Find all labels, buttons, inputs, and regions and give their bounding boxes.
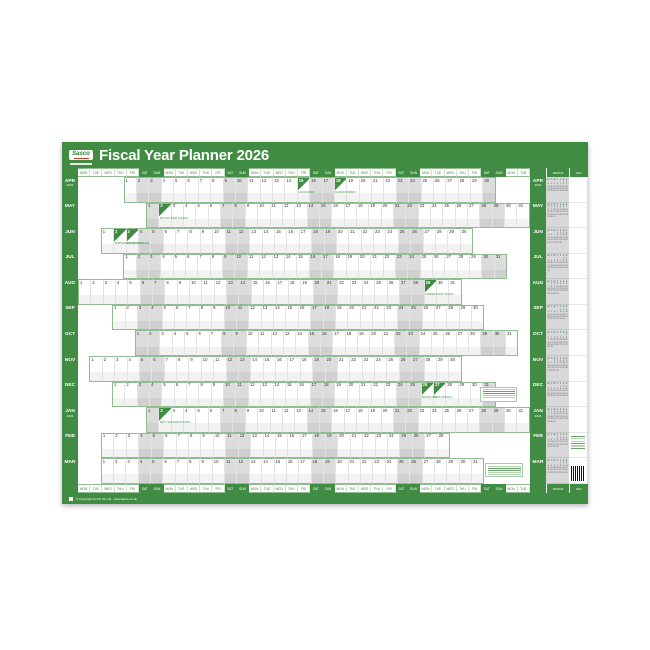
day-number: 17 xyxy=(324,179,329,183)
planner-body: APR2022MAYJUNJULAUGSEPOCTNOVDECJAN2023FE… xyxy=(62,168,588,493)
day-number: 17 xyxy=(334,332,339,336)
day-number: 25 xyxy=(399,460,404,464)
day-number: 16 xyxy=(265,281,270,285)
day-header-cell: TUE xyxy=(432,168,444,177)
day-cell: 22 xyxy=(406,407,418,433)
day-cell: 13 xyxy=(250,458,262,484)
day-cell: 14 xyxy=(264,433,276,459)
mini-calendar: MTWTFSS123456789101112131415161718192021… xyxy=(546,356,569,382)
day-number: 3 xyxy=(173,204,175,208)
day-number: 19 xyxy=(348,255,353,259)
day-number: 8 xyxy=(234,409,236,413)
day-number: 15 xyxy=(287,383,292,387)
day-number: 18 xyxy=(313,460,318,464)
day-header-cell: SUN xyxy=(322,168,334,177)
day-number: 30 xyxy=(506,204,511,208)
day-number: 16 xyxy=(333,204,338,208)
day-cell: 13 xyxy=(295,407,307,433)
day-cell: 29 xyxy=(493,407,505,433)
day-number: 15 xyxy=(265,358,270,362)
day-cell: 5 xyxy=(174,254,186,280)
day-cell xyxy=(518,254,529,280)
day-cell: 9 xyxy=(246,203,258,229)
planner-footer: © Copyright ACCO UK Ltd · www.sasco.co.u… xyxy=(62,493,588,504)
day-cell: 19 xyxy=(369,203,381,229)
day-cell: 27 xyxy=(425,433,437,459)
day-cell xyxy=(112,254,123,280)
key-legend-text xyxy=(571,436,585,450)
day-number: 14 xyxy=(286,255,291,259)
day-number: 11 xyxy=(227,434,231,438)
day-number: 22 xyxy=(385,255,390,259)
day-cell: 2 xyxy=(103,356,115,382)
day-cell: 24 xyxy=(386,228,398,254)
day-number: 13 xyxy=(251,460,256,464)
planner-title: Fiscal Year Planner 2026 xyxy=(99,147,269,164)
day-number: 12 xyxy=(238,460,243,464)
day-number: 26 xyxy=(411,460,416,464)
day-number: 11 xyxy=(203,281,207,285)
month-label: APR2022 xyxy=(62,177,78,203)
day-number: 25 xyxy=(410,383,415,387)
day-cell: 28 xyxy=(446,382,458,408)
day-cell: 5 xyxy=(151,228,163,254)
day-cell: 3 xyxy=(149,254,161,280)
holiday-label: EASTER MONDAY xyxy=(335,192,374,195)
day-cell xyxy=(78,254,89,280)
day-cell: 19 xyxy=(301,279,313,305)
day-number: 1 xyxy=(114,306,116,310)
day-number: 12 xyxy=(239,230,244,234)
day-number: 4 xyxy=(140,460,142,464)
day-cell: 31 xyxy=(517,203,529,229)
day-number: 14 xyxy=(264,230,269,234)
day-cell: 5 xyxy=(151,458,163,484)
day-header-cell: SAT xyxy=(139,484,151,493)
key-cell xyxy=(569,356,588,382)
month-row: 1NEW YEAR BANK HOLIDAY234567891011121314… xyxy=(78,407,530,433)
day-number: 4 xyxy=(185,204,187,208)
day-number: 4 xyxy=(151,306,153,310)
day-header-cell: SUN xyxy=(237,484,249,493)
day-number: 27 xyxy=(446,255,451,259)
day-number: 28 xyxy=(481,409,486,413)
day-number: 17 xyxy=(312,383,317,387)
day-cell: 14 xyxy=(274,305,286,331)
day-cell: 4 xyxy=(161,254,173,280)
day-number: 30 xyxy=(484,179,489,183)
day-number: 2 xyxy=(92,281,94,285)
day-cell xyxy=(78,458,89,484)
day-number: 18 xyxy=(314,434,319,438)
day-header-cell: MON xyxy=(78,168,90,177)
day-header-cell: THU xyxy=(115,168,127,177)
day-cell: 20 xyxy=(348,305,360,331)
day-header-cell: MON xyxy=(335,168,347,177)
day-cell: 15 xyxy=(275,458,287,484)
day-number: 25 xyxy=(376,281,381,285)
mini-calendar: MTWTFSS123456789101112131415161718192021… xyxy=(546,458,569,484)
day-number: 9 xyxy=(235,332,237,336)
day-cell: 14 xyxy=(308,407,320,433)
day-number: 8 xyxy=(200,383,202,387)
day-number: 22 xyxy=(351,358,356,362)
day-number: 11 xyxy=(249,255,253,259)
day-number: 20 xyxy=(337,460,342,464)
day-cell: 2 xyxy=(148,330,160,356)
day-number: 9 xyxy=(179,281,181,285)
mini-calendar-year-header-bottom: 2023/24 xyxy=(546,484,569,493)
day-number: 1 xyxy=(103,434,105,438)
day-header-cell: WED xyxy=(102,484,114,493)
day-cell: 28 xyxy=(425,356,437,382)
day-number: 9 xyxy=(213,306,215,310)
day-cell: 27 xyxy=(412,356,424,382)
day-cell: 13 xyxy=(273,177,285,203)
day-number: 14 xyxy=(275,383,280,387)
key-cell xyxy=(569,279,588,305)
day-cell: 21 xyxy=(360,382,372,408)
day-cell: 27 xyxy=(468,407,480,433)
day-cell: 28 xyxy=(435,458,447,484)
day-number: 5 xyxy=(152,230,154,234)
day-cell: 1 xyxy=(89,356,102,382)
day-cell: 22 xyxy=(384,177,396,203)
day-header-cell: THU xyxy=(286,484,298,493)
day-header-cell: TUE xyxy=(518,168,530,177)
day-number: 31 xyxy=(518,409,523,413)
day-cell: 7 xyxy=(199,177,211,203)
day-number: 15 xyxy=(276,230,281,234)
key-cell xyxy=(569,382,588,408)
day-number: 22 xyxy=(407,409,412,413)
day-cell: 10 xyxy=(213,458,225,484)
day-number: 28 xyxy=(437,230,442,234)
day-number: 16 xyxy=(289,434,294,438)
month-label: JUL xyxy=(530,254,546,280)
day-cell: 20 xyxy=(336,458,348,484)
day-cell: NEW YEAR BANK HOLIDAY2 xyxy=(159,407,171,433)
day-cell: 21 xyxy=(394,203,406,229)
month-row: 1234567891011121314151617181920212223242… xyxy=(78,382,530,408)
day-number: 16 xyxy=(333,409,338,413)
day-number: 14 xyxy=(286,179,291,183)
day-cell xyxy=(123,203,134,229)
day-number: 29 xyxy=(449,230,454,234)
day-number: 19 xyxy=(325,460,330,464)
day-cell: 19 xyxy=(336,305,348,331)
key-cell xyxy=(569,254,588,280)
day-cell: 5 xyxy=(128,279,140,305)
day-number: 11 xyxy=(249,179,253,183)
day-number: 25 xyxy=(433,332,438,336)
day-number: 9 xyxy=(224,255,226,259)
month-label: AUG xyxy=(62,279,78,305)
day-cell xyxy=(112,177,123,203)
day-number: 26 xyxy=(424,306,429,310)
holiday-label: PLATINUM JUBILEE xyxy=(127,243,166,246)
day-cell: 12 xyxy=(239,433,251,459)
day-number: 23 xyxy=(420,409,425,413)
day-number: 22 xyxy=(339,281,344,285)
day-cell: 7 xyxy=(165,356,177,382)
month-label: DEC xyxy=(62,382,78,408)
day-cell xyxy=(78,407,89,433)
mini-calendar-year-header-top: 2023/24 xyxy=(546,168,569,177)
day-number: 20 xyxy=(338,230,343,234)
day-number: 21 xyxy=(350,230,355,234)
day-cell: 30 xyxy=(505,407,517,433)
day-cell: 3 xyxy=(138,382,150,408)
day-number: 26 xyxy=(445,332,450,336)
day-number: 27 xyxy=(413,358,418,362)
day-cell xyxy=(519,433,530,459)
day-number: 22 xyxy=(373,383,378,387)
day-cell: 11 xyxy=(236,382,248,408)
day-number: 23 xyxy=(420,204,425,208)
day-number: 10 xyxy=(191,281,196,285)
day-cell: 7 xyxy=(187,382,199,408)
day-number: 11 xyxy=(260,332,264,336)
day-number: 29 xyxy=(494,409,499,413)
day-cell: 10 xyxy=(236,177,248,203)
day-cell: 20 xyxy=(338,433,350,459)
holiday-label: MAY DAY BANK HOLIDAY xyxy=(160,218,199,221)
day-cell: 30 xyxy=(461,228,473,254)
day-cell: 28 xyxy=(438,433,450,459)
day-cell: 4 xyxy=(184,203,196,229)
day-number: 10 xyxy=(248,332,253,336)
day-cell: 8 xyxy=(188,228,200,254)
day-cell: 22 xyxy=(372,382,384,408)
day-number: 24 xyxy=(376,358,381,362)
day-number: 20 xyxy=(361,179,366,183)
day-number: 25 xyxy=(423,179,428,183)
day-number: 11 xyxy=(226,460,230,464)
day-number: 22 xyxy=(407,204,412,208)
day-cell: 8 xyxy=(222,330,234,356)
day-number: 29 xyxy=(472,179,477,183)
day-cell: 8 xyxy=(211,254,223,280)
day-cell: 25 xyxy=(432,330,444,356)
day-header-cell: FRI xyxy=(127,168,139,177)
month-label: FEB xyxy=(62,433,78,459)
day-header-cell: FRI xyxy=(127,484,139,493)
day-number: 5 xyxy=(164,306,166,310)
month-row: 1234567891011121314GOOD FRIDAY151617EAST… xyxy=(78,177,530,203)
day-number: 4 xyxy=(185,409,187,413)
day-cell: 16 xyxy=(287,458,299,484)
day-number: 22 xyxy=(364,434,369,438)
day-cell: 15 xyxy=(297,254,309,280)
day-cell: 3 xyxy=(172,203,184,229)
day-cell: 11 xyxy=(226,228,238,254)
day-number: 20 xyxy=(315,281,320,285)
day-cell: 22 xyxy=(384,254,396,280)
day-number: 23 xyxy=(374,460,379,464)
day-cell: 30 xyxy=(449,356,461,382)
day-number: 15 xyxy=(287,306,292,310)
day-number: 3 xyxy=(139,383,141,387)
day-number: 1 xyxy=(103,460,105,464)
day-cell: 10 xyxy=(224,382,236,408)
day-number: 28 xyxy=(459,255,464,259)
day-cell xyxy=(101,203,112,229)
day-cell: 13 xyxy=(295,203,307,229)
day-cell: 20 xyxy=(337,228,349,254)
day-cell: 7 xyxy=(221,407,233,433)
day-cell xyxy=(78,305,89,331)
day-cell: 10 xyxy=(258,407,270,433)
day-number: 25 xyxy=(444,409,449,413)
day-cell: 3 xyxy=(127,433,139,459)
day-cell: 21 xyxy=(351,433,363,459)
day-number: 19 xyxy=(326,230,331,234)
day-cell: 21 xyxy=(349,228,361,254)
day-cell: 8 xyxy=(211,177,223,203)
day-cell: 22 xyxy=(363,433,375,459)
day-cell: GOOD FRIDAY15 xyxy=(298,177,310,203)
day-cell: 22 xyxy=(361,458,373,484)
day-number: 12 xyxy=(261,255,266,259)
day-number: 9 xyxy=(213,383,215,387)
day-cell: 12 xyxy=(249,305,261,331)
day-number: 31 xyxy=(450,281,455,285)
month-label: MAR xyxy=(530,458,546,484)
day-number: 8 xyxy=(189,460,191,464)
day-cell: 24 xyxy=(431,407,443,433)
month-row: 1234567891011121314151617181920212223242… xyxy=(78,330,530,356)
day-cell xyxy=(462,279,473,305)
day-cell: 6 xyxy=(175,382,187,408)
day-cell: 4 xyxy=(139,458,151,484)
day-cell: 16 xyxy=(332,407,344,433)
day-cell: 20 xyxy=(370,330,382,356)
day-cell: 11 xyxy=(237,305,249,331)
day-cell: 13 xyxy=(227,279,239,305)
day-number: 6 xyxy=(176,306,178,310)
day-cell: 18 xyxy=(334,254,346,280)
day-header-cell: TUE xyxy=(347,484,359,493)
day-number: 21 xyxy=(352,434,357,438)
day-number: 1 xyxy=(148,204,150,208)
day-cell: 7 xyxy=(221,203,233,229)
day-number: 23 xyxy=(364,358,369,362)
day-cell: 27 xyxy=(424,228,436,254)
day-number: 18 xyxy=(336,179,341,183)
year-end-note-box xyxy=(485,463,523,477)
day-cell xyxy=(518,330,529,356)
day-cell: 23 xyxy=(385,305,397,331)
day-cell: 14 xyxy=(263,228,275,254)
day-cell: 10 xyxy=(258,203,270,229)
day-cell xyxy=(78,177,89,203)
day-cell: 25 xyxy=(422,177,434,203)
day-cell: 8 xyxy=(200,305,212,331)
day-number: 10 xyxy=(215,434,220,438)
day-cell xyxy=(484,228,495,254)
day-cell: 1 xyxy=(135,330,148,356)
day-cell: 1 xyxy=(101,458,114,484)
day-number: 12 xyxy=(216,281,221,285)
day-cell: 24 xyxy=(386,458,398,484)
key-cell xyxy=(569,458,588,484)
day-number: 17 xyxy=(300,460,305,464)
day-number: 2 xyxy=(160,204,162,208)
day-number: 14 xyxy=(252,358,257,362)
day-number: 1 xyxy=(103,230,105,234)
day-cell xyxy=(123,407,134,433)
day-cell: 10 xyxy=(235,254,247,280)
day-cell xyxy=(473,433,484,459)
day-cell: 29 xyxy=(447,458,459,484)
month-row: 1234567891011121314151617181920212223242… xyxy=(78,254,530,280)
day-number: 29 xyxy=(438,358,443,362)
day-cell xyxy=(78,330,89,356)
day-header-cell: SAT xyxy=(225,168,237,177)
day-cell: 27 xyxy=(446,177,458,203)
day-cell xyxy=(78,356,89,382)
day-cell: 18 xyxy=(301,356,313,382)
day-number: 23 xyxy=(377,434,382,438)
day-cell xyxy=(519,305,530,331)
day-cell: 12 xyxy=(237,458,249,484)
day-cell: 22 xyxy=(406,203,418,229)
day-cell: 25 xyxy=(421,254,433,280)
day-cell xyxy=(484,279,495,305)
day-number: 24 xyxy=(399,306,404,310)
day-number: 5 xyxy=(186,332,188,336)
day-number: 12 xyxy=(284,204,289,208)
day-cell xyxy=(507,228,518,254)
day-number: 2 xyxy=(127,306,129,310)
day-cell: 3 xyxy=(149,177,161,203)
day-cell: 20 xyxy=(359,254,371,280)
day-cell: 26 xyxy=(413,433,425,459)
day-number: 27 xyxy=(435,383,440,387)
day-cell: 26 xyxy=(423,305,435,331)
day-number: 20 xyxy=(327,358,332,362)
day-cell: 29 xyxy=(437,356,449,382)
key-cell xyxy=(569,305,588,331)
day-cell: 27 xyxy=(457,330,469,356)
day-cell xyxy=(135,203,146,229)
month-row: 1234567891011121314151617181920212223242… xyxy=(78,279,530,305)
day-cell: 3 xyxy=(138,305,150,331)
day-header-cell: SAT xyxy=(225,484,237,493)
day-header-cell: TUE xyxy=(90,484,102,493)
day-cell xyxy=(101,254,112,280)
day-header-cell: THU xyxy=(200,168,212,177)
day-cell xyxy=(496,177,507,203)
day-cell xyxy=(507,177,518,203)
day-number: 9 xyxy=(190,358,192,362)
day-number: 1 xyxy=(125,255,127,259)
day-cell: 28 xyxy=(480,407,492,433)
day-header-cell: WED xyxy=(359,484,371,493)
day-cell: 23 xyxy=(376,433,388,459)
day-cell: 2 xyxy=(137,254,149,280)
day-header-cell: WED xyxy=(274,168,286,177)
day-cell: 15 xyxy=(275,228,287,254)
day-number: 22 xyxy=(374,306,379,310)
day-number: 18 xyxy=(302,358,307,362)
day-cell: 13 xyxy=(251,433,263,459)
day-header-cell: MON xyxy=(249,168,261,177)
day-cell: 15 xyxy=(286,305,298,331)
day-cell: 16 xyxy=(288,433,300,459)
day-number: 1 xyxy=(114,383,116,387)
